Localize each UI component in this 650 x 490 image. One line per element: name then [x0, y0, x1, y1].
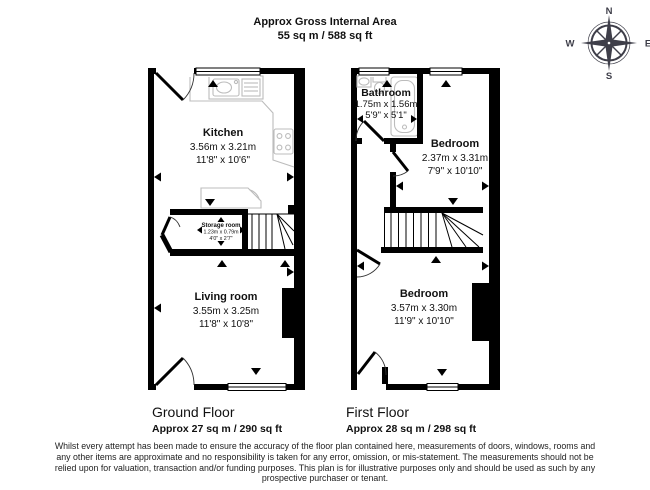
hob-icon [274, 129, 293, 154]
window [430, 64, 462, 77]
disclaimer-line: Whilst every attempt has been made to en… [0, 441, 650, 452]
compass-south-label: S [606, 71, 612, 82]
bedroom-back-metric: 3.57m x 3.30m [391, 303, 457, 314]
chimney-breast [282, 288, 294, 338]
first-floor-label: First Floor Approx 28 sq m / 298 sq ft [346, 404, 476, 435]
bedroom-back-imperial: 11'9" x 10'10" [394, 316, 454, 327]
chimney-breast [472, 283, 489, 341]
kitchen-metric: 3.56m x 3.21m [190, 142, 256, 153]
ground-floor-plan: Kitchen 3.56m x 3.21m 11'8" x 10'6" Stor… [151, 64, 305, 393]
title-line1: Approx Gross Internal Area [0, 15, 650, 29]
ground-floor-title: Ground Floor [152, 404, 282, 420]
page-title: Approx Gross Internal Area 55 sq m / 588… [0, 15, 650, 43]
disclaimer-line: relied upon for valuation, transaction a… [0, 463, 650, 474]
window [228, 380, 286, 393]
floorplan-page: Approx Gross Internal Area 55 sq m / 588… [0, 0, 650, 490]
ground-floor-label: Ground Floor Approx 27 sq m / 290 sq ft [152, 404, 282, 435]
floorplan-drawing: N E S W [0, 0, 650, 400]
title-line2: 55 sq m / 588 sq ft [0, 29, 650, 43]
bedroom-front-metric: 2.37m x 3.31m [422, 153, 488, 164]
kitchen-sink-icon [209, 76, 263, 99]
disclaimer-text: Whilst every attempt has been made to en… [0, 441, 650, 484]
window [196, 64, 260, 77]
disclaimer-line: any other items are approximate and no r… [0, 452, 650, 463]
first-floor-plan: Bathroom 1.75m x 1.56m 5'9" x 5'1" Bedro… [354, 64, 500, 393]
bedroom-front-name: Bedroom [431, 138, 480, 150]
bedroom-front-imperial: 7'9" x 10'10" [428, 166, 483, 177]
storage-imperial: 4'0" x 2'7" [209, 236, 232, 242]
kitchen-name: Kitchen [203, 127, 244, 139]
basin-icon [357, 76, 371, 87]
window [359, 64, 389, 77]
ground-floor-area: Approx 27 sq m / 290 sq ft [152, 423, 282, 435]
bathroom-metric: 1.75m x 1.56m [355, 99, 418, 110]
party-wall [294, 68, 305, 390]
living-room-imperial: 11'8" x 10'8" [199, 319, 254, 330]
living-room-name: Living room [195, 291, 258, 303]
first-floor-title: First Floor [346, 404, 476, 420]
disclaimer-line: prospective purchaser or tenant. [0, 473, 650, 484]
party-wall [489, 68, 500, 390]
bedroom-back-name: Bedroom [400, 288, 449, 300]
storage-name: Storage room [201, 223, 240, 229]
living-room-metric: 3.55m x 3.25m [193, 306, 259, 317]
window [427, 380, 458, 393]
bathroom-imperial: 5'9" x 5'1" [365, 110, 407, 121]
storage-metric: 1.23m x 0.79m [203, 230, 239, 236]
first-floor-area: Approx 28 sq m / 298 sq ft [346, 423, 476, 435]
kitchen-imperial: 11'8" x 10'6" [196, 155, 251, 166]
bathroom-name: Bathroom [361, 87, 411, 99]
